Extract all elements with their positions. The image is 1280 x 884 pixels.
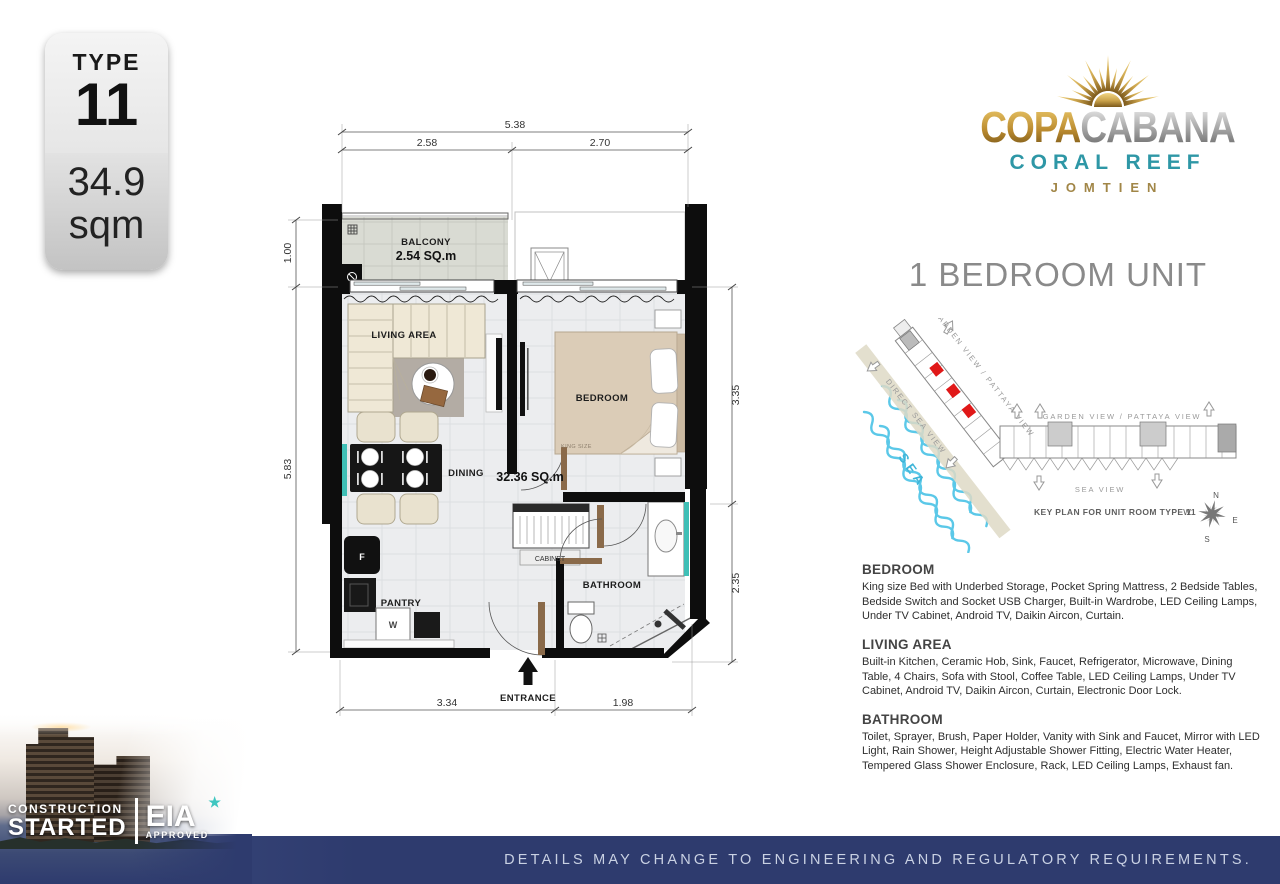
star-icon: ★: [208, 796, 221, 809]
brand-gold-text: COPA: [980, 103, 1080, 151]
dim-bottom-left: 3.34: [437, 697, 458, 709]
compass-rose-icon: [1198, 500, 1225, 527]
tv-living-icon: [496, 338, 502, 410]
hall-door-leaf: [560, 558, 602, 564]
living-area-label: LIVING AREA: [371, 330, 436, 341]
spec-sections: BEDROOM King size Bed with Underbed Stor…: [862, 562, 1260, 787]
type-badge-top: TYPE 11: [45, 33, 168, 153]
started-label: STARTED: [8, 816, 127, 840]
spec-bathroom-heading: BATHROOM: [862, 712, 1260, 727]
spec-living-area-heading: LIVING AREA: [862, 637, 1260, 652]
dim-top-left: 2.58: [417, 137, 438, 149]
bedroom-window: [517, 280, 677, 292]
balcony-area-label: 2.54 SQ.m: [396, 249, 456, 263]
key-plan-caption: KEY PLAN FOR UNIT ROOM TYPE 11: [1034, 507, 1196, 517]
brand-silver-text: CABANA: [1080, 103, 1234, 151]
dim-top-total: 5.38: [505, 119, 526, 131]
tv-bedroom-icon: [520, 342, 525, 416]
balcony-label: BALCONY: [401, 237, 451, 248]
entrance-label: ENTRANCE: [500, 693, 556, 704]
sea-view-label: SEA VIEW: [1075, 485, 1125, 494]
construction-badge: CONSTRUCTION STARTED EIA★ APPROVED: [8, 798, 209, 844]
type-number: 11: [45, 76, 168, 133]
king-size-label: KING SIZE: [561, 444, 592, 450]
photo-fade: [0, 712, 252, 736]
unit-area-label: 32.36 SQ.m: [496, 470, 563, 484]
spec-bedroom: BEDROOM King size Bed with Underbed Stor…: [862, 562, 1260, 624]
spec-bathroom-body: Toilet, Sprayer, Brush, Paper Holder, Va…: [862, 730, 1260, 774]
brand-wordmark: COPACABANA: [980, 106, 1235, 150]
dim-right-bathroom: 2.35: [730, 573, 742, 594]
type-badge: TYPE 11 34.9 sqm: [45, 33, 168, 270]
fridge-label: F: [359, 552, 365, 562]
vanity-sink: [648, 502, 689, 576]
bedside-table: [655, 458, 681, 476]
bathroom-label: BATHROOM: [583, 580, 641, 591]
spec-bedroom-body: King size Bed with Underbed Storage, Poc…: [862, 580, 1260, 624]
disclaimer-text: DETAILS MAY CHANGE TO ENGINEERING AND RE…: [504, 852, 1252, 868]
building-diagonal-wing: [894, 319, 1011, 466]
dim-right-bedroom: 3.35: [730, 385, 742, 406]
floor-plan: 5.38 2.58 2.70 1.00 5.83 3.35 2.35 3.34 …: [280, 112, 750, 724]
garden-view-horizontal-label: GARDEN VIEW / PATTAYA VIEW: [1043, 412, 1202, 421]
compass-s: S: [1204, 535, 1209, 544]
compass-e: E: [1232, 516, 1237, 525]
brand-location: JOMTIEN: [980, 180, 1235, 195]
dim-left-main: 5.83: [282, 459, 294, 480]
dim-left-balcony: 1.00: [282, 243, 294, 264]
brand-logo: COPACABANA CORAL REEF JOMTIEN: [980, 45, 1235, 195]
toilet: [568, 602, 594, 643]
entrance-door-leaf: [538, 602, 545, 655]
microwave: [344, 578, 376, 612]
key-plan: DIRECT SEA VIEW GARDEN VIEW / PATTAYA VI…: [852, 318, 1242, 553]
washer-label: W: [389, 620, 398, 630]
unit-area-value: 34.9: [45, 161, 168, 204]
unit-area-unit: sqm: [45, 204, 168, 247]
spec-living-area-body: Built-in Kitchen, Ceramic Hob, Sink, Fau…: [862, 655, 1260, 699]
bathroom-door-leaf: [597, 505, 604, 548]
spec-bathroom: BATHROOM Toilet, Sprayer, Brush, Paper H…: [862, 712, 1260, 774]
sunburst-icon: [1033, 45, 1183, 109]
dining-label: DINING: [448, 468, 484, 479]
dim-bottom-right: 1.98: [613, 697, 634, 709]
bedroom-label: BEDROOM: [576, 393, 628, 404]
brand-subtitle: CORAL REEF: [980, 151, 1235, 175]
bedside-table: [655, 310, 681, 328]
cabinet-label: CABINET: [535, 556, 566, 563]
badge-divider: [135, 798, 138, 844]
compass-w: W: [1183, 508, 1191, 517]
kitchen-sink-counter: [342, 444, 347, 496]
pantry-counter: [344, 640, 454, 648]
entrance-arrow-icon: [518, 657, 538, 685]
spec-bedroom-heading: BEDROOM: [862, 562, 1260, 577]
page-title: 1 BEDROOM UNIT: [893, 256, 1223, 294]
building-horizontal-wing: [1000, 422, 1236, 470]
pantry-label: PANTRY: [381, 598, 422, 609]
project-photo: CONSTRUCTION STARTED EIA★ APPROVED: [0, 712, 252, 884]
dim-top-right: 2.70: [590, 137, 611, 149]
shoe-cabinet: [414, 612, 440, 638]
type-badge-bottom: 34.9 sqm: [45, 153, 168, 270]
balcony-sliding-door: [350, 280, 494, 292]
sea-label: SEA: [895, 450, 930, 490]
eia-label: EIA★: [146, 803, 209, 830]
compass-n: N: [1213, 491, 1219, 500]
spec-living-area: LIVING AREA Built-in Kitchen, Ceramic Ho…: [862, 637, 1260, 699]
dining-table: [350, 444, 442, 492]
